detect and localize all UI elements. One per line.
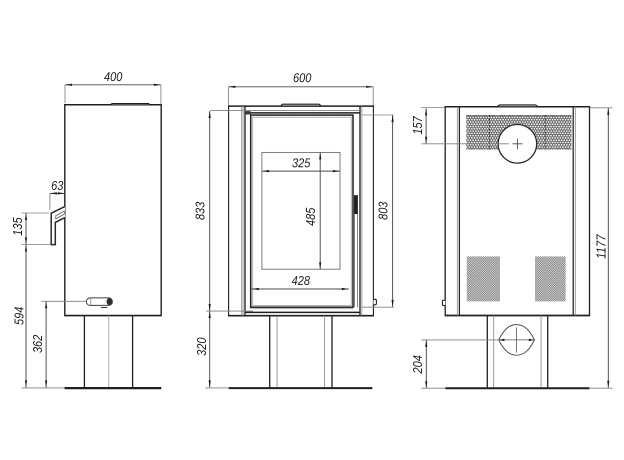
svg-text:594: 594 [11, 307, 26, 325]
svg-text:833: 833 [193, 202, 208, 220]
svg-text:485: 485 [303, 207, 318, 226]
svg-text:204: 204 [410, 355, 425, 374]
svg-text:157: 157 [410, 116, 425, 135]
svg-text:600: 600 [293, 70, 312, 85]
svg-text:63: 63 [51, 178, 63, 193]
svg-text:362: 362 [30, 335, 45, 353]
svg-text:428: 428 [292, 273, 311, 288]
svg-text:400: 400 [104, 69, 123, 84]
svg-text:325: 325 [292, 155, 311, 170]
svg-text:320: 320 [194, 337, 209, 356]
svg-text:803: 803 [376, 202, 391, 220]
svg-text:1177: 1177 [594, 234, 609, 259]
svg-text:135: 135 [10, 217, 25, 236]
